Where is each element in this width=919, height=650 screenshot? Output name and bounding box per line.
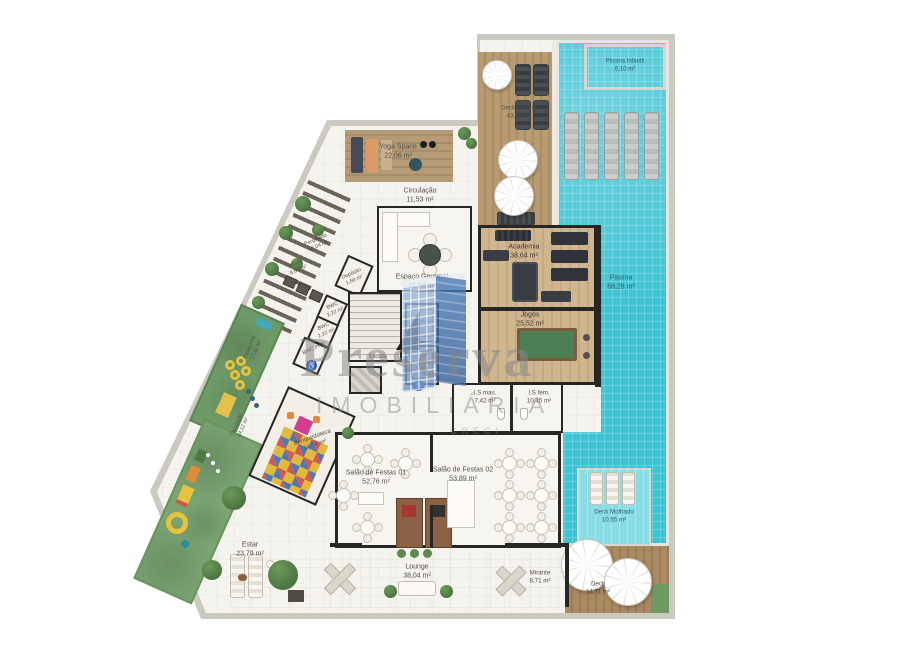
sideboard: [358, 492, 384, 505]
bush: [440, 585, 453, 598]
garden-bench: [398, 581, 436, 596]
label-circulacao-topo: Circulação 11,53 m²: [403, 187, 436, 205]
restroom-divider: [510, 383, 513, 433]
gourmet-counter: [382, 212, 398, 262]
hedge-dots: [397, 549, 406, 558]
umbrella-icon: [494, 176, 534, 216]
room-name: Deck: [586, 582, 610, 590]
room-name: Lounge: [403, 563, 431, 572]
pool-lounger: [604, 112, 619, 180]
deck-lounger: [533, 64, 549, 96]
pergola-foliage: [295, 196, 311, 212]
deck-pool-gap: [552, 40, 557, 228]
room-area: 8,71 m²: [530, 577, 551, 585]
label-lounge: Lounge 38,04 m²: [403, 563, 431, 581]
room-area: 38,64 m²: [508, 252, 539, 261]
pool-lounger: [644, 112, 659, 180]
play-ring: [225, 360, 235, 370]
mirante-wall: [505, 543, 569, 547]
label-deck-molhado: Deck Molhado 10,55 m²: [594, 508, 634, 524]
stepping-stones: [206, 453, 210, 457]
room-area: 22,06 m²: [379, 152, 417, 161]
umbrella-icon: [498, 140, 538, 180]
room-name: Mirante: [530, 569, 551, 577]
play-ring: [230, 370, 240, 380]
label-piscina-infantil: Piscina Infantil 6,10 m²: [606, 59, 645, 74]
toilet: [497, 408, 505, 420]
room-area: 7,42 m²: [474, 397, 497, 405]
umbrella-icon: [482, 60, 512, 90]
kids-chair: [313, 416, 320, 423]
wet-deck-lounger: [606, 472, 619, 505]
bush: [342, 427, 354, 439]
weight-rack: [483, 250, 509, 261]
path-dots: [246, 389, 251, 394]
room-area: 52,76 m²: [346, 478, 406, 487]
room-area: 10,55 m²: [594, 516, 634, 524]
pool-lounger: [584, 112, 599, 180]
play-ring: [235, 380, 245, 390]
gym-pool-wall: [595, 225, 601, 387]
wet-deck-lounger: [622, 472, 635, 505]
label-escada: Escada: [369, 354, 386, 361]
yoga-mat: [351, 137, 363, 173]
bush: [466, 138, 477, 149]
label-salao-2: Salão de Festas 02 53,89 m²: [433, 466, 493, 484]
pool-table: [517, 328, 577, 361]
treadmill: [551, 250, 588, 263]
party-divider: [430, 505, 433, 548]
label-estar: Estar 23,79 m²: [236, 541, 264, 559]
room-area: 38,04 m²: [403, 572, 431, 581]
dumbbell-icon: [429, 141, 436, 148]
label-salao-1: Salão de Festas 01 52,76 m²: [346, 469, 406, 487]
wet-deck-lounger: [590, 472, 603, 505]
room-name: Deck Piscina: [501, 104, 537, 112]
room-name: Piscina Infantil: [606, 59, 645, 67]
service-shaft: [349, 366, 382, 394]
bush: [384, 585, 397, 598]
stool: [583, 334, 590, 341]
tree: [202, 560, 222, 580]
label-jogos: Jogos 25,52 m²: [516, 311, 544, 329]
deck-grass: [652, 584, 669, 613]
room-name: Piscina: [607, 274, 635, 283]
dog-figure: [238, 574, 247, 581]
elevator-label: Elevador Social: [409, 360, 435, 371]
room-area: 43,65 m²: [501, 112, 537, 120]
stairs: [348, 292, 402, 362]
room-name: I.S fem.: [527, 389, 551, 397]
deck-lounger: [515, 64, 531, 96]
stool: [583, 352, 590, 359]
room-name: Estar: [236, 541, 264, 550]
mirante-wall: [565, 543, 569, 607]
room-name: Espaço Gourmet: [396, 273, 449, 282]
toilet: [520, 408, 528, 420]
play-ring-large: [166, 512, 188, 534]
gym-bench: [495, 230, 531, 241]
yoga-mat: [366, 139, 378, 172]
round-table: [360, 520, 375, 535]
room-name: Circulação: [403, 187, 436, 196]
room-area: 25,52 m²: [516, 320, 544, 329]
room-name: Deck Molhado: [594, 508, 634, 516]
room-area: 53,89 m²: [433, 475, 493, 484]
label-is-fem: I.S fem. 10,45 m²: [527, 389, 551, 405]
accessibility-icon: ♿: [413, 380, 424, 391]
room-name: Academia: [508, 243, 539, 252]
room-area: 14,71 m²: [586, 589, 610, 597]
dumbbell-rack: [541, 291, 571, 302]
room-area: 23,79 m²: [236, 550, 264, 559]
multi-gym: [512, 262, 538, 302]
island-counter: [447, 480, 475, 528]
label-academia: Academia 38,64 m²: [508, 243, 539, 261]
planter-box: [288, 590, 304, 602]
stove-top: [402, 505, 416, 517]
room-area: 10,45 m²: [527, 397, 551, 405]
room-name: I.S mas.: [474, 389, 497, 397]
pergola-foliage: [279, 226, 293, 240]
terrace-wall-stub: [330, 543, 362, 547]
play-dot: [181, 540, 189, 548]
round-table: [534, 520, 549, 535]
dumbbell-icon: [420, 141, 427, 148]
room-area: 31,60 m²: [396, 282, 449, 291]
round-table: [502, 488, 517, 503]
floor-plan: Piscina Infantil 6,10 m² Piscina 68,28 m…: [0, 0, 919, 650]
room-name: Salão de Festas 01: [346, 469, 406, 478]
room-area: 68,28 m²: [607, 283, 635, 292]
round-table: [360, 452, 375, 467]
room-area: 6,10 m²: [606, 66, 645, 74]
round-table: [534, 488, 549, 503]
round-table: [336, 488, 351, 503]
gourmet-table: [419, 244, 441, 266]
accessibility-icon: ♿: [306, 360, 317, 371]
treadmill: [551, 232, 588, 245]
round-table: [502, 520, 517, 535]
pool-lounger: [624, 112, 639, 180]
pool-lounger: [564, 112, 579, 180]
label-is-mas: I.S mas. 7,42 m²: [474, 389, 497, 405]
treadmill: [551, 268, 588, 281]
play-ring: [241, 366, 251, 376]
room-name: Salão de Festas 02: [433, 466, 493, 475]
round-table: [502, 456, 517, 471]
tree: [222, 486, 246, 510]
stove-top: [431, 505, 445, 517]
elevator: Elevador Social: [405, 345, 439, 385]
label-piscina: Piscina 68,28 m²: [607, 274, 635, 292]
label-mirante: Mirante 8,71 m²: [530, 569, 551, 585]
label-gourmet: Espaço Gourmet 31,60 m²: [396, 273, 449, 291]
room-name: Jogos: [516, 311, 544, 320]
room-area: 11,53 m²: [403, 196, 436, 205]
umbrella-icon: [604, 558, 652, 606]
label-yoga: Yoga Space 22,06 m²: [379, 143, 417, 161]
room-name: Yoga Space: [379, 143, 417, 152]
kids-chair: [287, 412, 294, 419]
pergola-foliage: [265, 262, 279, 276]
round-table: [534, 456, 549, 471]
pergola-foliage: [252, 296, 265, 309]
estar-lounger: [248, 554, 263, 598]
label-deck-piscina: Deck Piscina 43,65 m²: [501, 104, 537, 120]
room-name: Escada: [369, 354, 386, 361]
label-deck-inferior: Deck 14,71 m²: [586, 582, 610, 597]
tree: [268, 560, 298, 590]
